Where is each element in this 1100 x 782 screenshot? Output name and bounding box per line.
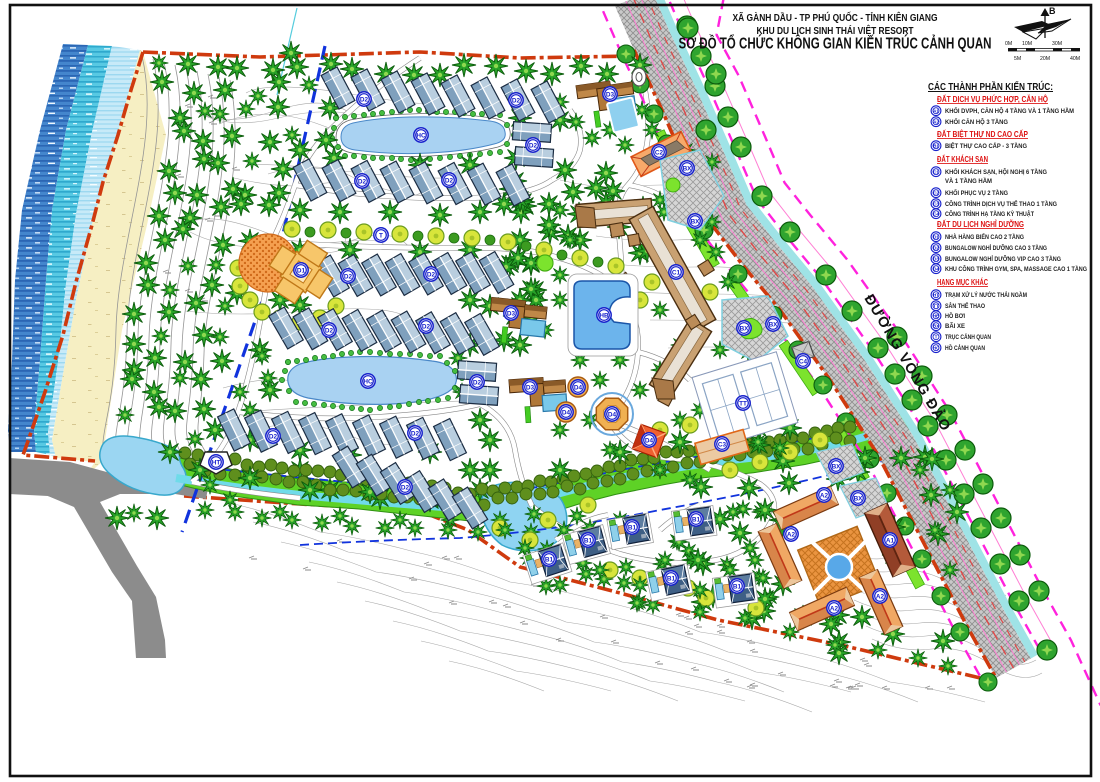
svg-text:D2: D2 — [401, 484, 410, 491]
svg-text:C2: C2 — [655, 149, 664, 156]
svg-text:D2: D2 — [358, 178, 367, 185]
svg-text:HT: HT — [933, 292, 939, 297]
svg-text:5M: 5M — [1014, 56, 1021, 62]
svg-text:B1: B1 — [692, 516, 701, 523]
svg-text:CÔNG TRÌNH DỊCH VỤ THỂ THAO 1: CÔNG TRÌNH DỊCH VỤ THỂ THAO 1 TẦNG — [945, 200, 1057, 208]
svg-text:TRẠM XỬ LÝ NƯỚC THẢI NGẦM: TRẠM XỬ LÝ NƯỚC THẢI NGẦM — [945, 291, 1027, 299]
svg-text:D1: D1 — [297, 267, 306, 274]
svg-text:C4: C4 — [933, 211, 939, 216]
svg-text:BX: BX — [854, 495, 864, 502]
svg-text:D2: D2 — [445, 177, 454, 184]
svg-text:A2: A2 — [787, 531, 796, 538]
svg-text:KHỐI CĂN HỘ 3 TẦNG: KHỐI CĂN HỘ 3 TẦNG — [945, 118, 1008, 126]
svg-text:HẠNG MỤC KHÁC: HẠNG MỤC KHÁC — [937, 276, 988, 287]
svg-text:ĐẤT KHÁCH SẠN: ĐẤT KHÁCH SẠN — [937, 153, 988, 164]
svg-text:B1: B1 — [667, 575, 676, 582]
svg-text:D2: D2 — [512, 97, 521, 104]
svg-text:ĐẤT DU LỊCH NGHỈ DƯỠNG: ĐẤT DU LỊCH NGHỈ DƯỠNG — [937, 218, 1024, 229]
svg-text:D1: D1 — [933, 234, 939, 239]
svg-text:D2: D2 — [344, 273, 353, 280]
svg-text:D2: D2 — [269, 433, 278, 440]
svg-text:BX: BX — [933, 323, 940, 328]
svg-text:BUNGALOW NGHỈ DƯỠNG VIP CAO 3: BUNGALOW NGHỈ DƯỠNG VIP CAO 3 TẦNG — [945, 256, 1061, 263]
svg-text:20M: 20M — [1040, 56, 1050, 62]
svg-text:D4: D4 — [574, 384, 583, 391]
svg-text:D2: D2 — [325, 327, 334, 334]
svg-text:D2: D2 — [422, 323, 431, 330]
svg-text:HỒ CẢNH QUAN: HỒ CẢNH QUAN — [945, 345, 985, 352]
svg-text:ĐẤT BIỆT THỰ ND CAO CẤP: ĐẤT BIỆT THỰ ND CAO CẤP — [937, 128, 1028, 139]
svg-text:KHỐI DVPH, CĂN HỘ 4 TẦNG VÀ 1: KHỐI DVPH, CĂN HỘ 4 TẦNG VÀ 1 TẦNG HẦM — [945, 107, 1074, 115]
svg-text:BX: BX — [683, 165, 693, 172]
svg-text:D3: D3 — [933, 256, 939, 261]
svg-text:B1: B1 — [545, 556, 554, 563]
svg-text:TT: TT — [933, 303, 939, 308]
svg-text:BX: BX — [691, 218, 701, 225]
svg-text:C3: C3 — [718, 441, 727, 448]
svg-text:C3: C3 — [933, 201, 939, 206]
svg-text:HT: HT — [212, 459, 221, 466]
svg-text:HỒ BƠI: HỒ BƠI — [945, 313, 965, 320]
svg-text:40M: 40M — [1070, 56, 1080, 62]
svg-text:A2: A2 — [830, 605, 839, 612]
svg-text:BX: BX — [769, 321, 779, 328]
svg-text:10M: 10M — [1022, 41, 1032, 47]
svg-text:A1: A1 — [886, 537, 895, 544]
svg-text:A2: A2 — [933, 119, 939, 124]
svg-text:T: T — [935, 334, 938, 339]
svg-text:HC: HC — [416, 132, 426, 139]
svg-text:D2: D2 — [411, 430, 420, 437]
svg-text:D3: D3 — [507, 310, 516, 317]
svg-text:D3: D3 — [526, 384, 535, 391]
svg-text:HC: HC — [363, 378, 373, 385]
svg-text:BX: BX — [832, 463, 842, 470]
svg-text:CÔNG TRÌNH HẠ TẦNG KỲ THUẬT: CÔNG TRÌNH HẠ TẦNG KỲ THUẬT — [945, 210, 1034, 218]
svg-text:BIỆT THỰ CAO CẤP - 3 TẦNG: BIỆT THỰ CAO CẤP - 3 TẦNG — [945, 142, 1027, 150]
svg-text:SƠ ĐỒ TỔ CHỨC KHÔNG GIAN KIẾN: SƠ ĐỒ TỔ CHỨC KHÔNG GIAN KIẾN TRÚC CẢNH … — [679, 35, 992, 53]
svg-text:B1: B1 — [933, 143, 939, 148]
svg-text:D2: D2 — [933, 245, 939, 250]
svg-text:D4: D4 — [645, 437, 654, 444]
svg-text:D2: D2 — [427, 271, 436, 278]
svg-text:C4: C4 — [799, 358, 808, 365]
svg-text:A2: A2 — [820, 492, 829, 499]
svg-text:A2: A2 — [876, 593, 885, 600]
svg-text:NHÀ HÀNG BIỂN CAO 2 TẦNG: NHÀ HÀNG BIỂN CAO 2 TẦNG — [945, 234, 1024, 241]
svg-text:C1: C1 — [933, 169, 939, 174]
svg-text:D2: D2 — [360, 96, 369, 103]
svg-text:C2: C2 — [933, 190, 939, 195]
svg-text:BUNGALOW NGHỈ DƯỠNG CAO 3 TẦN: BUNGALOW NGHỈ DƯỠNG CAO 3 TẦNG — [945, 245, 1047, 252]
svg-text:KHỐI KHÁCH SẠN, HỘI NGHỊ 6 TẦN: KHỐI KHÁCH SẠN, HỘI NGHỊ 6 TẦNG — [945, 168, 1047, 176]
svg-text:T: T — [379, 232, 383, 239]
svg-text:VÀ 1 TẦNG HẦM: VÀ 1 TẦNG HẦM — [945, 178, 992, 185]
svg-text:HB: HB — [599, 312, 609, 319]
svg-text:D4: D4 — [608, 411, 617, 418]
svg-text:A1: A1 — [933, 108, 939, 113]
svg-text:BÃI XE: BÃI XE — [945, 323, 965, 330]
svg-text:D4: D4 — [933, 266, 939, 271]
svg-text:TRỤC CẢNH QUAN: TRỤC CẢNH QUAN — [945, 334, 991, 341]
svg-text:C1: C1 — [672, 269, 681, 276]
svg-text:D2: D2 — [473, 379, 482, 386]
svg-text:30M: 30M — [1052, 41, 1062, 47]
svg-text:D4: D4 — [562, 409, 571, 416]
svg-text:B1: B1 — [628, 524, 637, 531]
svg-text:0M: 0M — [1005, 41, 1012, 47]
svg-text:B: B — [1049, 6, 1056, 16]
svg-text:HB: HB — [933, 313, 940, 318]
svg-text:TT: TT — [739, 400, 747, 407]
svg-text:KHU CÔNG TRÌNH GYM, SPA, MASSA: KHU CÔNG TRÌNH GYM, SPA, MASSAGE CAO 1 T… — [945, 265, 1087, 273]
svg-text:ĐẤT DỊCH VỤ PHỨC HỢP, CĂN HỘ: ĐẤT DỊCH VỤ PHỨC HỢP, CĂN HỘ — [937, 93, 1048, 104]
svg-text:B1: B1 — [584, 537, 593, 544]
svg-text:B1: B1 — [733, 583, 742, 590]
svg-text:CÁC THÀNH PHẦN KIẾN TRÚC:: CÁC THÀNH PHẦN KIẾN TRÚC: — [928, 80, 1053, 93]
svg-text:HC: HC — [933, 345, 940, 350]
svg-text:KHỐI PHỤC VỤ 2 TẦNG: KHỐI PHỤC VỤ 2 TẦNG — [945, 190, 1008, 197]
svg-text:D3: D3 — [606, 91, 615, 98]
svg-text:XÃ GÀNH DẦU - TP PHÚ QUỐC - TỈ: XÃ GÀNH DẦU - TP PHÚ QUỐC - TỈNH KIÊN GI… — [733, 10, 938, 24]
svg-text:BX: BX — [740, 325, 750, 332]
svg-text:SÂN THỂ THAO: SÂN THỂ THAO — [945, 303, 985, 310]
svg-text:D2: D2 — [529, 142, 538, 149]
